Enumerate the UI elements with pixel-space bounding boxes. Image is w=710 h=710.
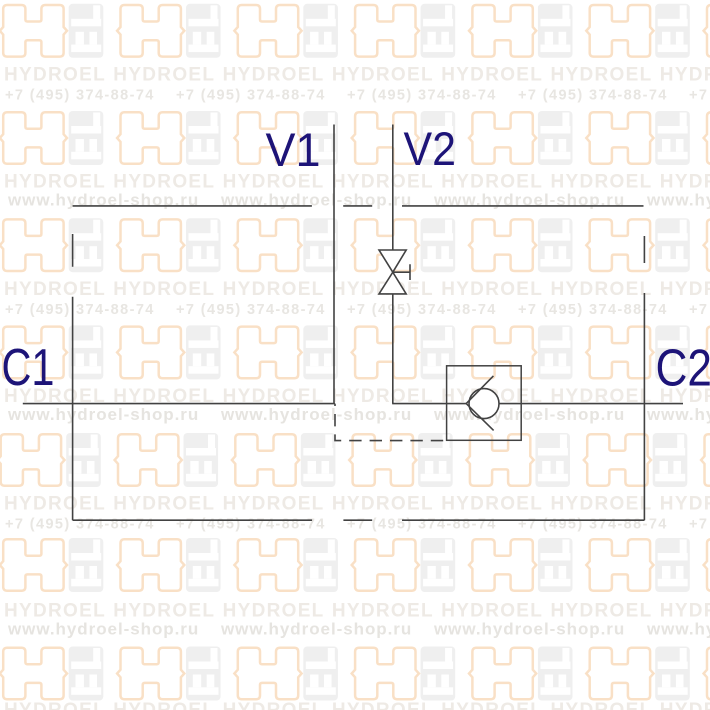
svg-text:C1: C1: [2, 339, 55, 397]
svg-text:www.hydroel-shop.ruwww.hydroel: www.hydroel-shop.ruwww.hydroel-shop.ruww…: [7, 405, 710, 424]
svg-text:V2: V2: [404, 122, 457, 175]
svg-text:V1: V1: [266, 123, 321, 176]
svg-text:+7 (495) 374-88-74+7 (495) 374: +7 (495) 374-88-74+7 (495) 374-88-74+7 (…: [5, 88, 710, 104]
svg-text:+7 (495) 374-88-74+7 (495) 374: +7 (495) 374-88-74+7 (495) 374-88-74+7 (…: [5, 302, 710, 318]
svg-text:+7 (495) 374-88-74+7 (495) 374: +7 (495) 374-88-74+7 (495) 374-88-74+7 (…: [5, 516, 710, 532]
svg-text:www.hydroel-shop.ruwww.hydroel: www.hydroel-shop.ruwww.hydroel-shop.ruww…: [7, 619, 710, 638]
svg-text:C2: C2: [656, 340, 710, 398]
